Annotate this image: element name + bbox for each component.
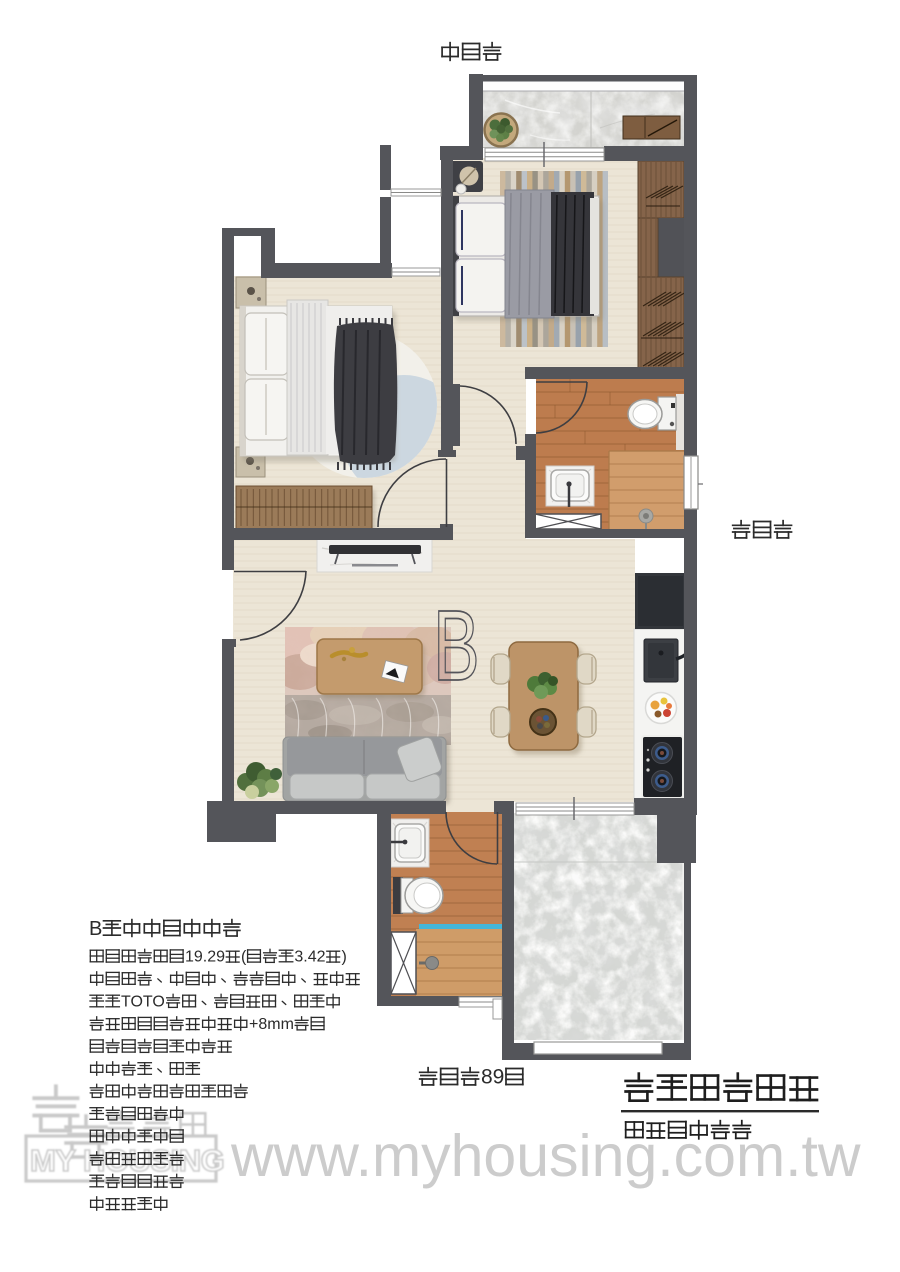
svg-text:89: 89	[481, 1066, 504, 1089]
svg-text:B: B	[89, 918, 102, 940]
svg-text:19.29: 19.29	[185, 948, 225, 965]
svg-text:TOTO: TOTO	[121, 993, 165, 1010]
svg-text:MY HOUSING: MY HOUSING	[30, 1143, 224, 1178]
svg-text:+8mm: +8mm	[249, 1016, 294, 1033]
svg-text:): )	[342, 948, 347, 965]
svg-text:3.42: 3.42	[294, 948, 325, 965]
svg-text:www.myhousing.com.tw: www.myhousing.com.tw	[230, 1123, 861, 1189]
svg-text:(: (	[241, 948, 247, 965]
svg-text:B: B	[433, 591, 480, 702]
